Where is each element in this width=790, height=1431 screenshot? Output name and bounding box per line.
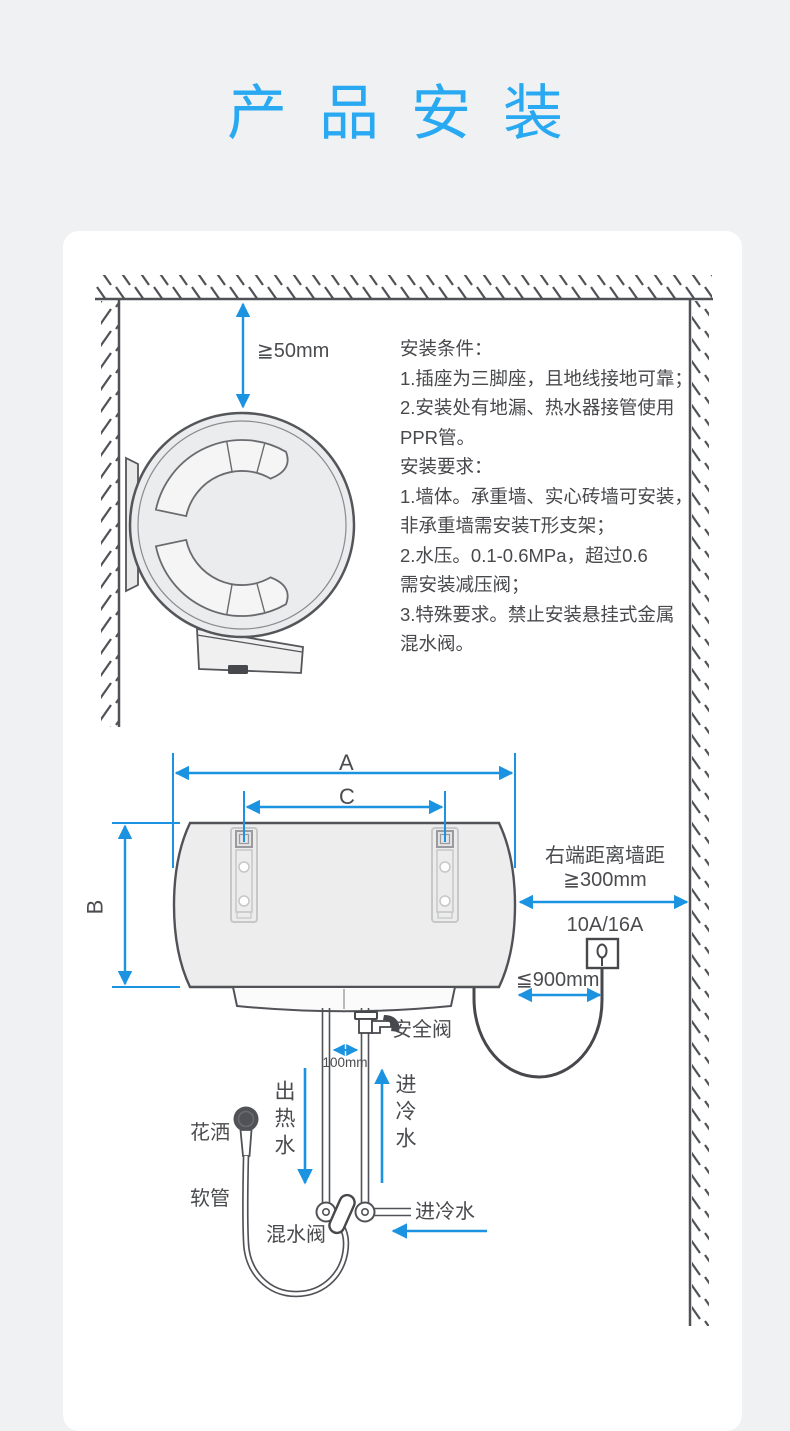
- label-dim-a: A: [339, 751, 354, 775]
- label-dim-c: C: [339, 785, 355, 809]
- label-dim-b: B: [82, 900, 108, 915]
- label-shower-head: 花洒: [190, 1122, 230, 1144]
- side-panel-tab: [228, 665, 248, 674]
- mounting-bracket-left: [231, 828, 257, 922]
- ceiling-hatch: [96, 275, 712, 298]
- label-hose: 软管: [190, 1188, 230, 1210]
- tank-body: [174, 823, 515, 987]
- heater-side-view: [126, 413, 354, 674]
- left-wall-hatch: [101, 301, 118, 727]
- label-ceiling-gap: ≧50mm: [257, 340, 329, 362]
- label-safety-valve: 安全阀: [392, 1019, 452, 1041]
- label-socket-rating: 10A/16A: [540, 914, 670, 936]
- mounting-bracket-right: [432, 828, 458, 922]
- label-pipe-gap: 100mm: [321, 1055, 369, 1070]
- label-cold-water-in: 进冷水: [392, 1073, 416, 1154]
- heater-front-view: [174, 823, 515, 1011]
- label-socket-height: ≦900mm: [516, 969, 599, 991]
- plumbing: [234, 1008, 412, 1294]
- label-mixer-valve: 混水阀: [266, 1224, 326, 1246]
- install-conditions-text: 安装条件： 1.插座为三脚座，且地线接地可靠； 2.安装处有地漏、热水器接管使用…: [400, 334, 720, 659]
- label-cold-inlet: 进冷水: [415, 1201, 475, 1223]
- label-wall-distance-1: 右端距离墙距: [522, 845, 688, 867]
- label-hot-water-out: 出热水: [271, 1080, 295, 1161]
- label-wall-distance-2: ≧300mm: [522, 869, 688, 891]
- shower-head-icon: [234, 1107, 259, 1157]
